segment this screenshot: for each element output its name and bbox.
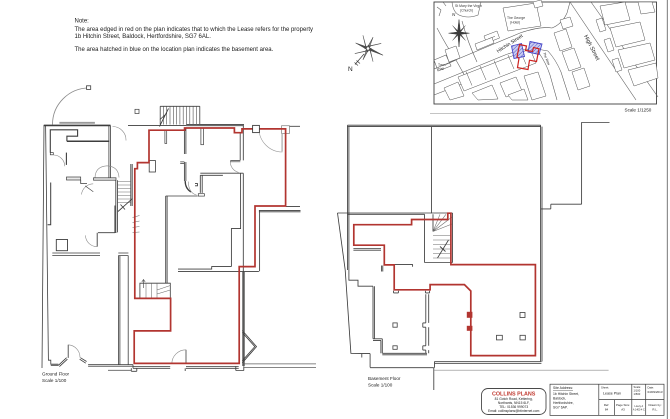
svg-text:Baldock,: Baldock, — [553, 397, 566, 401]
svg-text:Basement Floor: Basement Floor — [368, 376, 401, 381]
svg-text:Ref:: Ref: — [604, 403, 609, 407]
svg-text:Scale 1/1250: Scale 1/1250 — [625, 108, 652, 113]
svg-text:R.L.: R.L. — [652, 408, 657, 412]
svg-text:Scale 1/100: Scale 1/100 — [42, 378, 67, 383]
svg-text:(Hotel): (Hotel) — [510, 21, 520, 25]
svg-text:Note:: Note: — [75, 19, 90, 25]
svg-text:04/09/2013: 04/09/2013 — [648, 390, 663, 394]
svg-text:Sheet:: Sheet: — [601, 385, 609, 389]
svg-text:Page Size:: Page Size: — [616, 403, 630, 407]
svg-text:The area hatched in blue on th: The area hatched in blue on the location… — [75, 47, 274, 53]
svg-text:1b Hitchin Street,: 1b Hitchin Street, — [553, 392, 579, 396]
svg-text:84: 84 — [605, 408, 609, 412]
svg-text:1b Hitchin Street, Baldock, He: 1b Hitchin Street, Baldock, Hertfordshir… — [75, 34, 212, 40]
svg-text:SG7 6AP.: SG7 6AP. — [553, 406, 568, 410]
svg-text:N: N — [348, 66, 353, 73]
svg-text:Drawn by:: Drawn by: — [648, 403, 661, 407]
svg-text:The area edged in red on the p: The area edged in red on the plan indica… — [75, 27, 313, 33]
svg-text:Hertfordshire,: Hertfordshire, — [553, 401, 574, 405]
svg-text:A 1400 4 C: A 1400 4 C — [633, 409, 645, 412]
svg-text:St Mary the Virgin: St Mary the Virgin — [455, 4, 482, 8]
svg-text:The George: The George — [507, 16, 525, 20]
svg-text:Date:: Date: — [648, 386, 655, 390]
svg-text:Email: collinsplans@btinternet: Email: collinsplans@btinternet.com — [488, 409, 540, 413]
svg-text:Scale 1/100: Scale 1/100 — [368, 383, 393, 388]
svg-text:Site Address:: Site Address: — [553, 386, 573, 390]
svg-text:(Church): (Church) — [460, 9, 473, 13]
svg-text:1/100: 1/100 — [634, 389, 641, 393]
svg-text:Lease Plan: Lease Plan — [603, 392, 621, 396]
svg-text:A3: A3 — [621, 408, 625, 412]
svg-text:Ground Floor: Ground Floor — [42, 372, 70, 377]
svg-text:Hall: Hall — [438, 67, 444, 71]
svg-text:Scale:: Scale: — [634, 385, 642, 389]
svg-text:1/500: 1/500 — [634, 392, 641, 396]
